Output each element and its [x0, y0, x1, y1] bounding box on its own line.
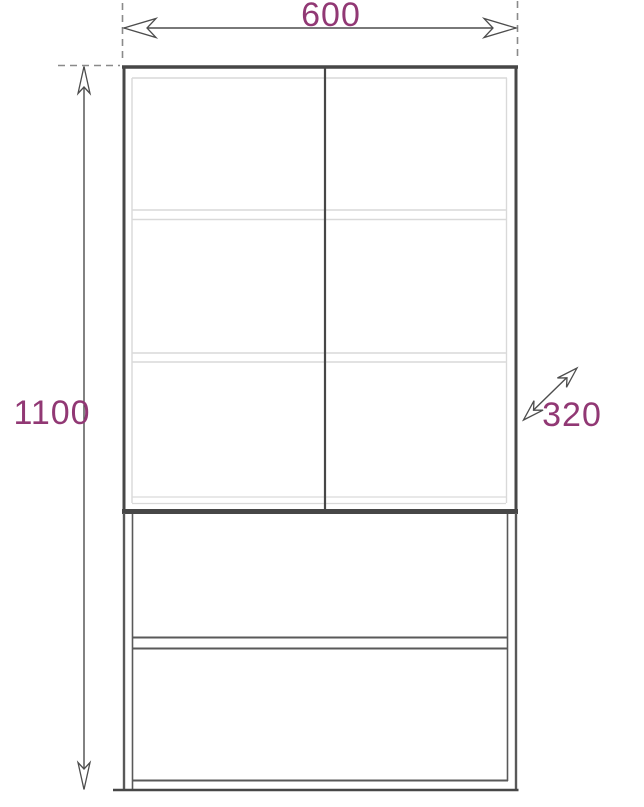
width-dimension-label: 600 [301, 0, 361, 34]
drawing-svg: 600 1100 320 [0, 0, 644, 807]
height-dimension-label: 1100 [13, 394, 90, 432]
depth-dimension-label: 320 [542, 396, 602, 434]
cabinet-lower-section [113, 513, 519, 790]
height-dimension: 1100 [13, 66, 120, 790]
dimension-drawing: 600 1100 320 [0, 0, 644, 807]
depth-dimension: 320 [524, 368, 602, 434]
width-dimension: 600 [123, 0, 518, 62]
cabinet-upper-section [122, 66, 518, 514]
